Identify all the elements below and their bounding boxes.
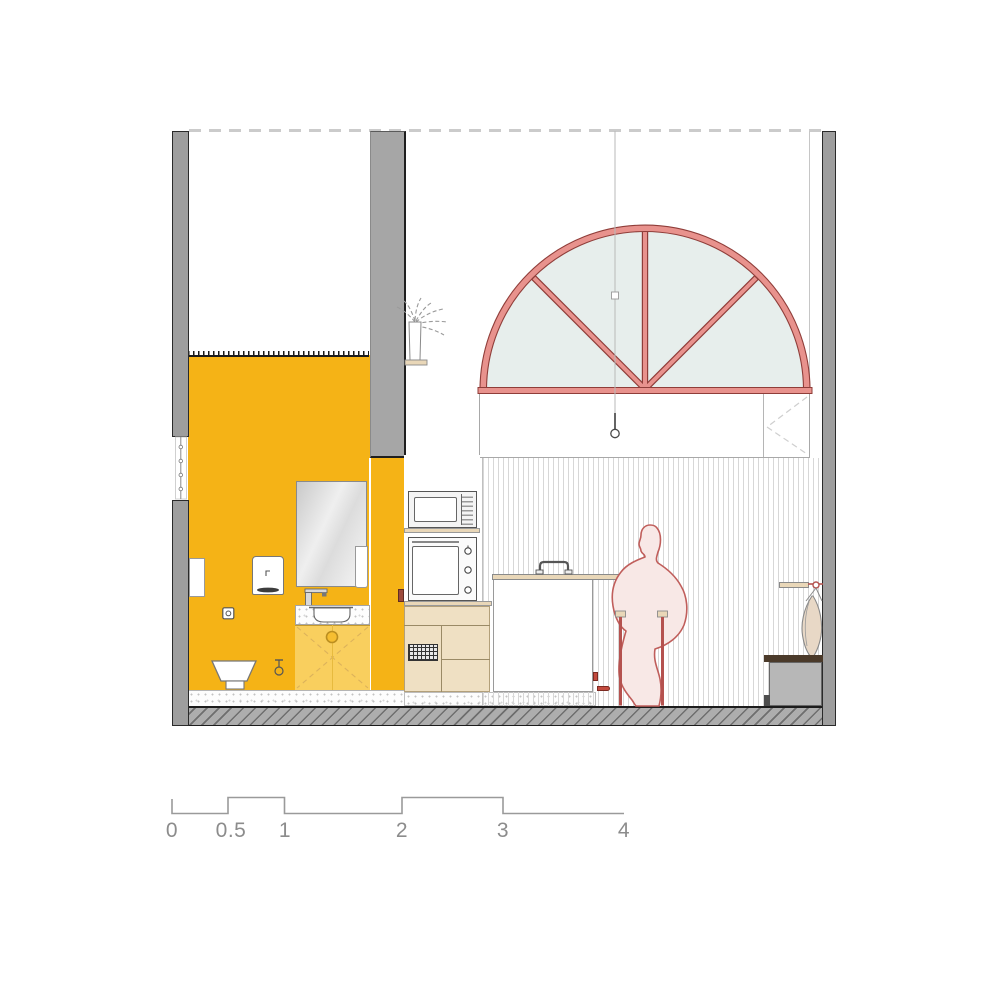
- person-figure: [606, 516, 700, 712]
- hanging-vase: [798, 578, 828, 662]
- ceiling-dashed-line: [189, 129, 822, 132]
- scale-bar: [160, 790, 640, 820]
- exterior-wall-left-lower: [172, 500, 189, 726]
- door-leaf-in-wall: [171, 435, 191, 502]
- arched-window: [476, 220, 814, 396]
- oven-handle: [412, 541, 459, 543]
- island-tap-upper: [593, 672, 598, 681]
- towel: [355, 546, 368, 588]
- hand-dryer-detail: [252, 556, 284, 595]
- water-valve: [271, 657, 287, 679]
- vent-grille: [408, 644, 438, 661]
- cabinet-seam-horizontal-2: [441, 659, 490, 660]
- oven-door: [412, 546, 459, 595]
- section-drawing: 0 0.5 1 2 3 4: [0, 0, 1000, 1000]
- toilet: [206, 657, 262, 693]
- oven-knobs: [460, 543, 478, 597]
- scale-label-0-5: 0.5: [216, 819, 247, 843]
- bench-body: [769, 662, 822, 706]
- vanity-cabinet-detail: [295, 625, 370, 690]
- scale-label-0: 0: [166, 819, 178, 843]
- exterior-wall-left-upper: [172, 131, 189, 437]
- microwave-control-panel: [461, 494, 473, 525]
- window-band: [479, 392, 810, 458]
- wall-niche: [189, 558, 205, 597]
- appliance-shelf: [404, 528, 480, 533]
- cabinet-door-symbol: [763, 393, 811, 457]
- scale-label-4: 4: [618, 819, 630, 843]
- pendant-lamp: [604, 128, 628, 444]
- island-body: [493, 579, 593, 692]
- cabinet-seam-horizontal: [404, 625, 490, 626]
- bench-top: [764, 655, 823, 662]
- bathroom-ceiling-line: [188, 351, 369, 357]
- pot-lid-handle: [533, 558, 575, 576]
- scale-label-2: 2: [396, 819, 408, 843]
- microwave-door: [414, 497, 457, 522]
- partition-wall: [370, 131, 406, 458]
- scale-label-3: 3: [497, 819, 509, 843]
- bench-foot: [764, 695, 770, 706]
- scale-label-1: 1: [279, 819, 291, 843]
- sink-bowl: [306, 603, 356, 625]
- floor-slab: [172, 706, 836, 726]
- plant-on-shelf: [394, 296, 456, 368]
- power-outlet: [222, 607, 235, 620]
